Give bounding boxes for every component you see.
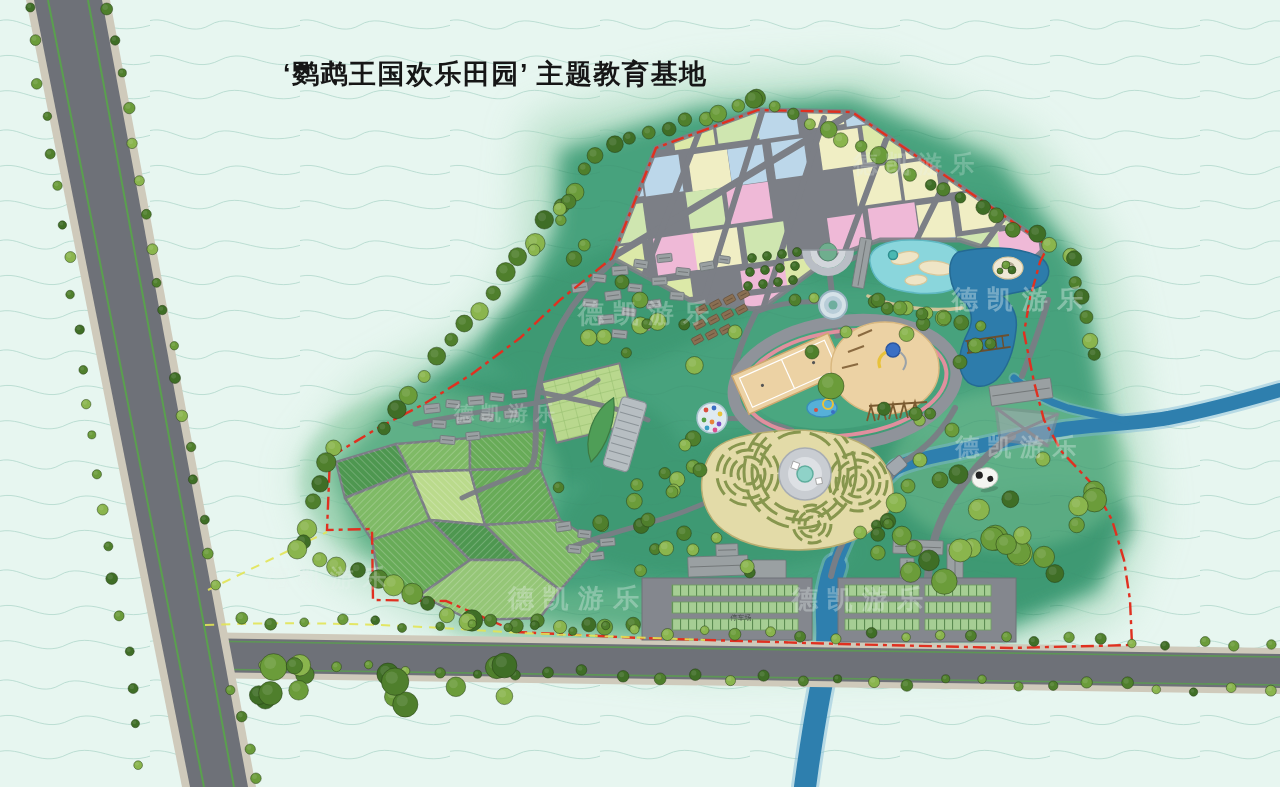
building (590, 551, 605, 560)
tree-highlight (580, 241, 585, 246)
tree-highlight (159, 307, 163, 311)
tree-highlight (402, 389, 410, 397)
building (628, 283, 643, 292)
tree-highlight (252, 774, 257, 779)
tree-highlight (153, 279, 157, 283)
tree-highlight (807, 347, 813, 353)
tree-highlight (80, 367, 84, 371)
tree-highlight (116, 612, 121, 617)
tree-highlight (112, 37, 116, 41)
tree-highlight (469, 621, 473, 625)
building (676, 267, 691, 276)
central-plaza (779, 448, 831, 500)
tree-highlight (1268, 641, 1272, 645)
tree-highlight (777, 265, 781, 269)
tree-highlight (760, 671, 765, 676)
tree-highlight (555, 204, 561, 210)
tree-highlight (563, 196, 570, 203)
tree-highlight (505, 624, 509, 628)
tree-highlight (792, 263, 796, 267)
tree-highlight (903, 481, 909, 487)
tree-highlight (823, 123, 831, 131)
tree-highlight (1071, 278, 1077, 284)
tree-highlight (1228, 684, 1232, 688)
tree-highlight (903, 681, 908, 686)
tree-highlight (314, 478, 321, 485)
tree-highlight (202, 516, 206, 520)
tree-highlight (998, 269, 1001, 272)
tree-highlight (822, 376, 834, 388)
tree-highlight (557, 216, 562, 221)
tree-highlight (609, 138, 617, 146)
tree-highlight (1031, 638, 1035, 642)
tree-highlight (909, 542, 916, 549)
tree-highlight (617, 277, 623, 283)
tree-highlight (688, 433, 695, 440)
building (592, 273, 607, 282)
parking-row (925, 619, 991, 630)
tree-highlight (127, 648, 131, 652)
tree-highlight (789, 110, 794, 115)
tree-highlight (873, 529, 879, 535)
tree-highlight (499, 690, 507, 698)
tree-highlight (935, 572, 947, 584)
splash-pool (807, 399, 837, 417)
building (600, 537, 616, 546)
building (424, 403, 441, 414)
tree-highlight (125, 104, 130, 109)
building (555, 521, 571, 532)
tree-highlight (791, 296, 796, 301)
tree-highlight (386, 671, 398, 683)
tree-highlight (1003, 633, 1007, 637)
tree-highlight (300, 522, 309, 531)
tree-highlight (266, 620, 271, 625)
building (634, 259, 649, 269)
tree-highlight (883, 304, 888, 309)
tree-highlight (105, 543, 109, 547)
tree-highlight (333, 663, 337, 667)
tree-highlight (873, 295, 879, 301)
tree-highlight (1162, 642, 1166, 646)
tree-highlight (1031, 227, 1039, 235)
tree-highlight (679, 528, 686, 535)
tree-highlight (979, 676, 983, 680)
tree-highlight (702, 627, 706, 631)
tree-highlight (748, 93, 756, 101)
tree-highlight (437, 669, 442, 674)
tree-highlight (339, 615, 344, 620)
tree-highlight (922, 553, 931, 562)
tree-highlight (423, 598, 429, 604)
tree-highlight (903, 634, 907, 638)
tree-highlight (589, 150, 596, 157)
tree-highlight (1072, 499, 1081, 508)
tree-highlight (555, 622, 561, 628)
parking-label: 停车场 (731, 614, 752, 622)
tree-highlight (486, 616, 492, 622)
tree-highlight (760, 281, 764, 285)
tree-highlight (366, 662, 370, 666)
plan-title: ‘鹦鹉王国欢乐田园’ 主题教育基地 (283, 59, 708, 89)
tree-highlight (555, 483, 560, 488)
tree-highlight (742, 561, 748, 567)
tree-highlight (1004, 493, 1012, 501)
tree-highlight (1230, 642, 1235, 647)
tree-highlight (488, 288, 495, 295)
tree-highlight (1036, 549, 1046, 559)
tree-highlight (952, 467, 961, 476)
tree-highlight (292, 683, 301, 692)
tree-highlight (1097, 635, 1102, 640)
tree-highlight (695, 465, 701, 471)
tree-highlight (595, 517, 602, 524)
tree-highlight (143, 211, 147, 215)
tree-highlight (437, 623, 441, 627)
tree-highlight (836, 135, 843, 142)
tree-highlight (701, 114, 707, 120)
tree-highlight (570, 628, 574, 632)
tree-highlight (580, 164, 586, 170)
tree-highlight (1085, 335, 1092, 342)
tree-highlight (1086, 491, 1097, 502)
tree-highlight (842, 328, 847, 333)
tree-highlight (178, 412, 183, 417)
tree-highlight (47, 150, 52, 155)
tree-highlight (762, 267, 766, 271)
building (718, 255, 731, 264)
tree-highlight (623, 349, 628, 354)
tree-highlight (1009, 267, 1013, 271)
tree-highlight (857, 142, 862, 147)
tree-highlight (301, 619, 305, 623)
building (612, 329, 628, 339)
tree-highlight (730, 327, 736, 333)
tree-highlight (889, 495, 898, 504)
tree-highlight (379, 424, 385, 430)
tree-highlight (991, 210, 998, 217)
tree-highlight (458, 317, 466, 325)
tree-highlight (1049, 567, 1057, 575)
watermark-text: 德凯游乐 (507, 583, 648, 613)
tree-highlight (987, 340, 992, 345)
tree-highlight (879, 404, 885, 410)
tree-highlight (238, 614, 243, 619)
tree-highlight (713, 534, 718, 539)
tree-highlight (420, 372, 425, 377)
tree-highlight (943, 676, 947, 680)
building (652, 277, 667, 286)
tree-highlight (475, 671, 479, 675)
tree-highlight (544, 668, 549, 673)
tree-highlight (538, 213, 546, 221)
building (512, 389, 528, 398)
tree-highlight (227, 687, 231, 691)
tree-highlight (870, 678, 875, 683)
tree-highlight (449, 680, 458, 689)
tree-highlight (868, 629, 873, 634)
tree-highlight (1191, 689, 1195, 693)
tree-highlight (957, 194, 962, 199)
tree-highlight (319, 455, 328, 464)
tree-highlight (656, 674, 661, 679)
watermark-text: 德凯游乐 (951, 284, 1092, 314)
tree-highlight (633, 480, 639, 486)
tree-highlight (680, 115, 686, 121)
tree-highlight (915, 455, 921, 461)
tree-highlight (315, 554, 321, 560)
tree-highlight (811, 294, 816, 299)
tree-highlight (771, 102, 776, 107)
tree-highlight (59, 222, 63, 226)
tree-highlight (749, 255, 753, 259)
tree-highlight (89, 432, 93, 436)
tree-highlight (767, 628, 771, 632)
tree-highlight (1008, 224, 1015, 231)
tree-highlight (631, 626, 635, 630)
tree-highlight (76, 326, 80, 330)
tree-highlight (977, 322, 982, 327)
building (432, 420, 447, 429)
tree-highlight (1050, 682, 1054, 686)
master-plan: 停车场 德凯游乐德凯游乐德凯游乐德凯游乐德凯游乐德凯游乐德凯游乐德凯游乐 ‘鹦鹉… (0, 0, 1280, 787)
tree-highlight (128, 139, 133, 144)
tree-highlight (955, 357, 961, 363)
tree-highlight (132, 721, 136, 725)
tree-highlight (67, 253, 72, 258)
tree-highlight (691, 670, 696, 675)
tree-highlight (747, 269, 751, 273)
tree-highlight (939, 184, 945, 190)
tree-highlight (895, 303, 901, 309)
tree-highlight (745, 283, 749, 287)
tree-highlight (661, 469, 666, 474)
tree-highlight (779, 251, 783, 255)
tree-highlight (190, 476, 194, 480)
tree-highlight (672, 474, 679, 481)
tree-highlight (619, 672, 624, 677)
tree-highlight (54, 182, 58, 186)
building (578, 529, 592, 538)
tree-highlight (1069, 253, 1076, 260)
tree-highlight (599, 331, 606, 338)
tree-highlight (103, 5, 108, 10)
watermark-text: 德凯游乐 (577, 298, 718, 328)
tree-highlight (108, 574, 113, 579)
tree-highlight (1071, 519, 1078, 526)
tree-highlight (790, 277, 794, 281)
watermark-text: 德凯游乐 (264, 564, 395, 591)
tree-highlight (918, 310, 923, 315)
tree-highlight (583, 332, 590, 339)
tree-highlight (727, 677, 732, 682)
tree-highlight (396, 695, 407, 706)
tree-highlight (442, 610, 449, 617)
tree-highlight (800, 677, 805, 682)
tree-highlight (1123, 678, 1128, 683)
tree-highlight (835, 676, 839, 680)
tree-highlight (895, 529, 904, 538)
tree-highlight (328, 442, 335, 449)
building (440, 435, 456, 444)
tree-highlight (532, 622, 536, 626)
site-plan-image: 停车场 德凯游乐德凯游乐德凯游乐德凯游乐德凯游乐德凯游乐德凯游乐德凯游乐 ‘鹦鹉… (0, 0, 1280, 787)
tree-highlight (884, 520, 889, 525)
tree-highlight (978, 202, 985, 209)
tree-highlight (926, 409, 931, 414)
tree-highlight (636, 566, 641, 571)
tree-highlight (372, 617, 376, 621)
tree-highlight (806, 120, 811, 125)
tree-highlight (264, 657, 276, 669)
tree-highlight (530, 246, 535, 251)
tree-highlight (939, 313, 945, 319)
parking-row (845, 619, 919, 630)
tree-highlight (775, 279, 779, 283)
tree-highlight (999, 537, 1008, 546)
tree-highlight (584, 619, 590, 625)
kids-playground (697, 403, 727, 433)
tree-highlight (1016, 529, 1024, 537)
tree-highlight (171, 343, 175, 347)
tree-highlight (934, 474, 941, 481)
tree-highlight (927, 181, 932, 186)
tree-highlight (1153, 686, 1157, 690)
tree-highlight (873, 521, 878, 526)
tree-highlight (130, 685, 135, 690)
tree-highlight (794, 249, 798, 253)
tree-highlight (496, 656, 507, 667)
tree-highlight (644, 128, 650, 134)
tree-highlight (569, 253, 576, 260)
building (490, 392, 505, 401)
tree-highlight (731, 630, 736, 635)
tree-highlight (511, 250, 519, 258)
tree-highlight (764, 253, 768, 257)
parking-row (925, 602, 991, 613)
tree-highlight (1044, 239, 1051, 246)
tree-highlight (33, 80, 38, 85)
tree-highlight (578, 666, 583, 671)
tree-highlight (689, 545, 694, 550)
tree-highlight (661, 543, 668, 550)
tree-highlight (911, 409, 917, 415)
tree-highlight (712, 107, 720, 115)
tree-highlight (499, 265, 508, 274)
tree-highlight (149, 245, 154, 250)
tree-highlight (99, 505, 104, 510)
building (688, 555, 749, 577)
tree-highlight (1065, 633, 1070, 638)
tree-highlight (27, 4, 31, 8)
tree-highlight (625, 133, 631, 139)
tree-highlight (238, 713, 243, 718)
tree-highlight (832, 635, 837, 640)
building (716, 544, 738, 557)
tree-highlight (681, 441, 686, 446)
tree-highlight (952, 542, 962, 552)
watermark-text: 德凯游乐 (453, 402, 562, 424)
tree-highlight (629, 495, 636, 502)
tree-highlight (663, 630, 668, 635)
tree-highlight (308, 496, 315, 503)
tree-highlight (171, 374, 176, 379)
watermark-text: 德凯游乐 (954, 433, 1085, 460)
tree-highlight (247, 745, 252, 750)
parking-row (672, 602, 798, 613)
tree-highlight (972, 502, 981, 511)
building (568, 544, 582, 553)
tree-highlight (603, 622, 607, 626)
tree-highlight (651, 545, 656, 550)
tree-highlight (688, 359, 696, 367)
tree-highlight (67, 291, 71, 295)
watermark-text: 德凯游乐 (791, 584, 932, 614)
tree-highlight (262, 684, 273, 695)
fountain (889, 251, 898, 260)
tree-highlight (399, 625, 403, 629)
tree-highlight (44, 113, 48, 117)
tree-highlight (668, 488, 673, 493)
tree-highlight (473, 305, 481, 313)
round-plaza (819, 291, 847, 319)
tree-highlight (901, 328, 908, 335)
tree-highlight (94, 471, 98, 475)
tree-highlight (1267, 687, 1272, 692)
tree-highlight (405, 586, 415, 596)
parking-row (672, 585, 798, 596)
tree-highlight (956, 317, 963, 324)
tree-highlight (212, 581, 216, 585)
tree-highlight (83, 401, 87, 405)
tree-highlight (1083, 678, 1088, 683)
tree-highlight (290, 542, 299, 551)
tree-highlight (204, 549, 209, 554)
tree-highlight (984, 530, 995, 541)
tree-highlight (32, 36, 37, 41)
tree-highlight (1129, 640, 1133, 644)
tree-highlight (289, 660, 296, 667)
tree-highlight (903, 564, 912, 573)
tree-highlight (390, 402, 398, 410)
tree-highlight (664, 124, 670, 130)
tree-highlight (796, 633, 801, 638)
tree-highlight (856, 528, 862, 534)
tree-highlight (734, 101, 740, 107)
tree-highlight (1003, 262, 1007, 266)
tree-highlight (1202, 638, 1206, 642)
tree-highlight (136, 177, 141, 182)
building (466, 431, 481, 440)
tree-highlight (430, 349, 438, 357)
tree-highlight (947, 425, 953, 431)
tree-highlight (937, 632, 941, 636)
tree-highlight (447, 335, 453, 341)
tree-highlight (119, 70, 123, 74)
tree-highlight (643, 515, 649, 521)
tree-highlight (1090, 350, 1096, 356)
building (657, 253, 673, 263)
tree-highlight (528, 236, 537, 245)
tree-highlight (135, 762, 139, 766)
tree-highlight (967, 632, 972, 637)
watermark-text: 德凯游乐 (852, 150, 983, 177)
tree-highlight (873, 547, 880, 554)
tree-highlight (569, 185, 577, 193)
tree-highlight (188, 443, 192, 447)
tree-highlight (970, 340, 977, 347)
building (612, 265, 629, 275)
